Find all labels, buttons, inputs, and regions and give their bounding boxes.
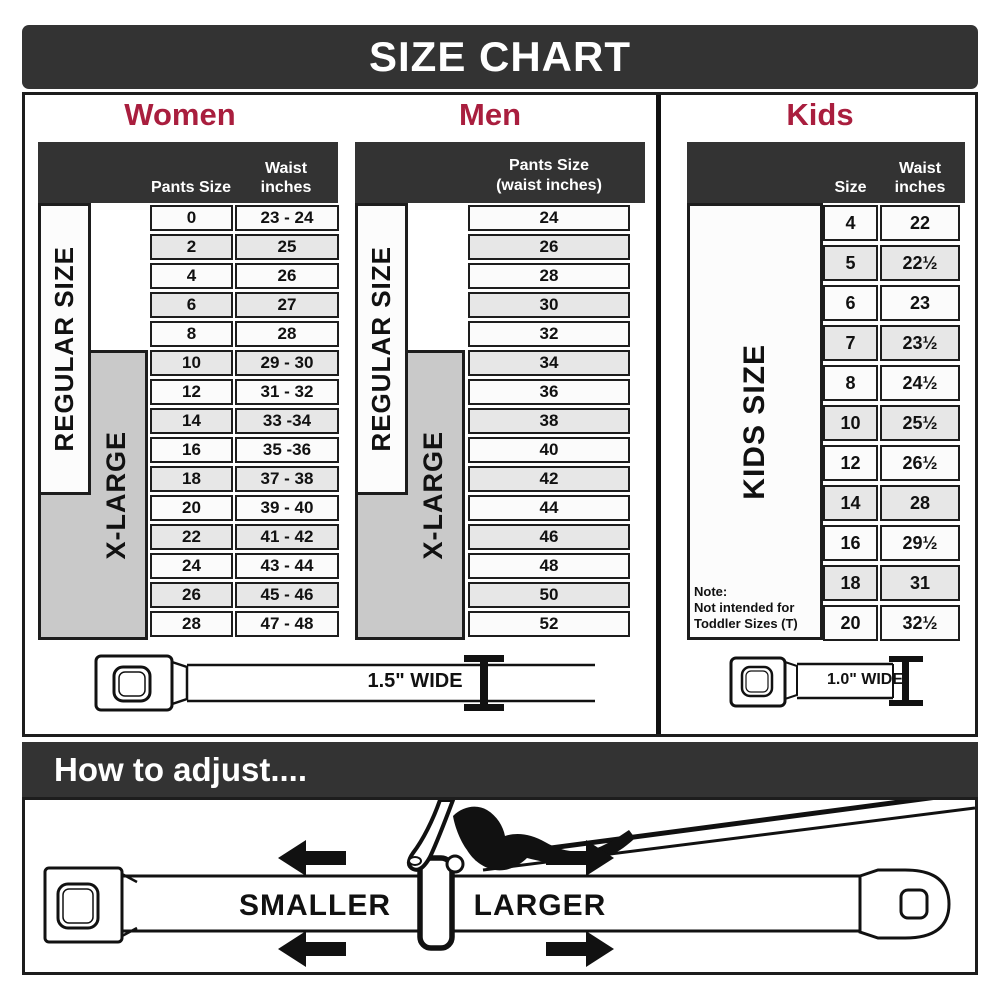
kids-size-cell: 7 <box>823 325 878 361</box>
men-size-cell: 52 <box>468 611 630 637</box>
kids-size-cell: 10 <box>823 405 878 441</box>
hand-illustration <box>409 800 975 872</box>
women-regular-size-region: REGULAR SIZE <box>38 203 91 495</box>
women-regular-label: REGULAR SIZE <box>49 246 80 452</box>
men-heading: Men <box>355 95 625 135</box>
women-waist-cell: 37 - 38 <box>235 466 339 492</box>
women-pants-size-cell: 12 <box>150 379 233 405</box>
smaller-arrow-bottom-icon <box>278 931 346 967</box>
women-waist-cell: 23 - 24 <box>235 205 339 231</box>
women-waist-cell: 28 <box>235 321 339 347</box>
kids-size-cell: 14 <box>823 485 878 521</box>
kids-waist-cell: 23 <box>880 285 960 321</box>
women-waist-cell: 27 <box>235 292 339 318</box>
women-pants-size-cell: 22 <box>150 524 233 550</box>
women-pants-size-cell: 16 <box>150 437 233 463</box>
kids-waist-cell: 26½ <box>880 445 960 481</box>
women-pants-size-cell: 4 <box>150 263 233 289</box>
men-table-header-banner: Pants Size (waist inches) <box>355 142 645 203</box>
women-heading: Women <box>25 95 335 135</box>
women-pants-size-cell: 26 <box>150 582 233 608</box>
larger-arrow-bottom-icon <box>546 931 614 967</box>
women-waist-cell: 29 - 30 <box>235 350 339 376</box>
buckle-latch <box>172 662 187 704</box>
men-regular-size-region: REGULAR SIZE <box>355 203 408 495</box>
women-pants-size-cell: 2 <box>150 234 233 260</box>
women-waist-cell: 35 -36 <box>235 437 339 463</box>
howto-banner: How to adjust.... <box>22 742 978 797</box>
kids-size-label: KIDS SIZE <box>738 344 772 500</box>
howto-heading: How to adjust.... <box>22 742 978 797</box>
kids-note: Note: Not intended for Toddler Sizes (T) <box>694 584 820 632</box>
larger-label: LARGER <box>450 889 630 923</box>
men-regular-label: REGULAR SIZE <box>366 246 397 452</box>
kids-waist-cell: 25½ <box>880 405 960 441</box>
kids-waist-cell: 29½ <box>880 525 960 561</box>
adult-belt-diagram: 1.5" WIDE <box>90 652 645 714</box>
page-title: SIZE CHART <box>369 33 631 81</box>
women-table-header-banner: Pants Size Waist inches <box>38 142 338 203</box>
men-size-cell: 48 <box>468 553 630 579</box>
women-waist-cell: 43 - 44 <box>235 553 339 579</box>
women-waist-cell: 47 - 48 <box>235 611 339 637</box>
women-pants-size-cell: 20 <box>150 495 233 521</box>
kids-waist-cell: 32½ <box>880 605 960 641</box>
men-size-cell: 46 <box>468 524 630 550</box>
men-size-column: 242628303234363840424446485052 <box>468 205 630 640</box>
size-chart-page: SIZE CHART Women Men Kids Pants Size Wai… <box>0 0 1000 1000</box>
chart-area: Women Men Kids Pants Size Waist inches X… <box>22 92 978 737</box>
men-size-cell: 26 <box>468 234 630 260</box>
belt-tip <box>860 870 949 938</box>
kids-size-cell: 18 <box>823 565 878 601</box>
women-pants-size-column: 0246810121416182022242628 <box>150 205 233 640</box>
women-pants-size-cell: 0 <box>150 205 233 231</box>
kids-waist-cell: 31 <box>880 565 960 601</box>
men-size-cell: 50 <box>468 582 630 608</box>
men-size-cell: 30 <box>468 292 630 318</box>
kids-waist-cell: 22½ <box>880 245 960 281</box>
kids-size-cell: 16 <box>823 525 878 561</box>
kids-waist-cell: 23½ <box>880 325 960 361</box>
kids-size-cell: 20 <box>823 605 878 641</box>
women-waist-cell: 26 <box>235 263 339 289</box>
belt-slider <box>420 858 452 948</box>
seatbelt-buckle-icon <box>45 868 137 942</box>
buckle-latch <box>785 662 797 699</box>
smaller-label: SMALLER <box>220 889 410 923</box>
kids-waist-header: Waist inches <box>880 159 960 197</box>
kids-waist-column: 2222½2323½24½25½26½2829½3132½ <box>880 205 960 641</box>
women-waist-cell: 41 - 42 <box>235 524 339 550</box>
kids-size-cell: 4 <box>823 205 878 241</box>
women-waist-cell: 31 - 32 <box>235 379 339 405</box>
kids-size-cell: 8 <box>823 365 878 401</box>
women-waist-cell: 25 <box>235 234 339 260</box>
women-waist-cell: 33 -34 <box>235 408 339 434</box>
kids-table-header-banner: Size Waist inches <box>687 142 965 203</box>
kids-size-cell: 5 <box>823 245 878 281</box>
men-size-cell: 24 <box>468 205 630 231</box>
kids-size-cell: 6 <box>823 285 878 321</box>
women-pants-size-cell: 10 <box>150 350 233 376</box>
women-waist-cell: 39 - 40 <box>235 495 339 521</box>
kids-size-column: 45678101214161820 <box>823 205 878 641</box>
adult-belt-width-label: 1.5" WIDE <box>325 670 505 693</box>
kids-belt-width-label: 1.0" WIDE <box>810 671 920 689</box>
women-pants-size-cell: 6 <box>150 292 233 318</box>
kids-waist-cell: 28 <box>880 485 960 521</box>
men-size-cell: 34 <box>468 350 630 376</box>
kids-heading: Kids <box>662 95 978 135</box>
men-size-cell: 38 <box>468 408 630 434</box>
kids-belt-diagram: 1.0" WIDE <box>725 655 925 713</box>
women-pants-size-cell: 18 <box>150 466 233 492</box>
kids-size-header: Size <box>823 178 878 197</box>
seatbelt-buckle-icon <box>731 658 785 706</box>
women-pants-size-cell: 8 <box>150 321 233 347</box>
kids-size-cell: 12 <box>823 445 878 481</box>
howto-illustration-box: SMALLER LARGER <box>22 797 978 975</box>
women-pants-size-cell: 28 <box>150 611 233 637</box>
men-pants-size-header: Pants Size (waist inches) <box>468 156 630 196</box>
men-size-cell: 36 <box>468 379 630 405</box>
men-size-cell: 32 <box>468 321 630 347</box>
men-size-cell: 42 <box>468 466 630 492</box>
adjust-belt-illustration <box>25 800 975 972</box>
women-pants-size-header: Pants Size <box>148 178 234 197</box>
women-pants-size-cell: 24 <box>150 553 233 579</box>
smaller-arrow-top-icon <box>278 840 346 876</box>
panel-divider <box>656 95 661 734</box>
men-size-cell: 28 <box>468 263 630 289</box>
title-banner: SIZE CHART <box>22 25 978 89</box>
men-size-cell: 40 <box>468 437 630 463</box>
women-waist-column: 23 - 242526272829 - 3031 - 3233 -3435 -3… <box>235 205 339 640</box>
kids-waist-cell: 22 <box>880 205 960 241</box>
men-size-cell: 44 <box>468 495 630 521</box>
women-pants-size-cell: 14 <box>150 408 233 434</box>
men-xlarge-label: X-LARGE <box>418 431 449 560</box>
women-xlarge-label: X-LARGE <box>101 431 132 560</box>
kids-waist-cell: 24½ <box>880 365 960 401</box>
women-waist-cell: 45 - 46 <box>235 582 339 608</box>
kids-size-region: KIDS SIZE Note: Not intended for Toddler… <box>687 203 823 640</box>
women-waist-header: Waist inches <box>234 159 338 197</box>
